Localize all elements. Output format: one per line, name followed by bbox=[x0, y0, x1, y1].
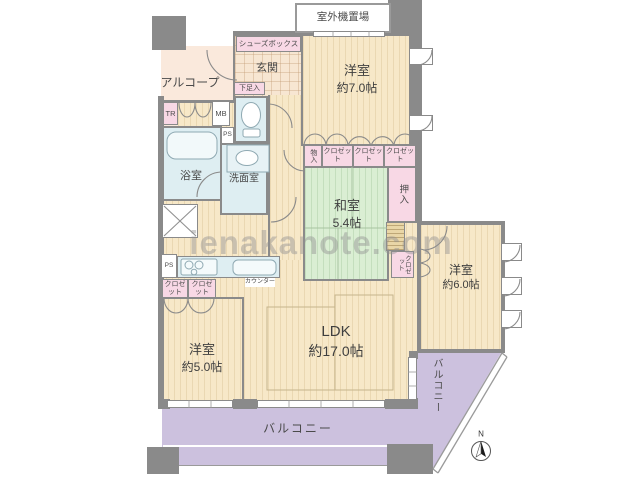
wall-left-outer bbox=[158, 96, 164, 406]
room-toilet bbox=[234, 96, 268, 143]
closet-top-2: クロゼット bbox=[353, 145, 384, 167]
closet-kitchen-2: クロゼット bbox=[188, 279, 216, 298]
pillar-bottom-right bbox=[387, 444, 433, 474]
label-bathroom: 浴室 bbox=[180, 167, 202, 183]
pipe-space-1: PS bbox=[221, 127, 234, 144]
shoe-cabinet-box: 下足入 bbox=[234, 82, 265, 95]
wall-bottom-right bbox=[385, 399, 411, 409]
pillar-top-left bbox=[152, 16, 186, 50]
window-west7-1 bbox=[409, 48, 433, 65]
watermark: ienakanote.com bbox=[166, 224, 476, 262]
wall-bottom-mid bbox=[233, 399, 257, 409]
compass-icon bbox=[472, 441, 491, 461]
closet-top-1: クロゼット bbox=[322, 145, 353, 167]
label-alcove: アルコープ bbox=[161, 74, 220, 91]
window-west7-2 bbox=[409, 115, 433, 131]
label-western5: 洋室 約5.0帖 bbox=[182, 341, 223, 375]
label-western7: 洋室 約7.0帖 bbox=[337, 62, 378, 96]
label-ldk: LDK 約17.0帖 bbox=[308, 322, 363, 361]
window-south-strip-1 bbox=[167, 400, 233, 408]
outdoor-unit-box: 室外機置場 bbox=[295, 3, 391, 33]
label-balcony-east: バルコニー bbox=[429, 358, 444, 413]
window-west6-3 bbox=[501, 310, 522, 328]
pillar-top-right bbox=[388, 0, 422, 33]
trunk-room-box: TR bbox=[163, 102, 178, 125]
closet-kitchen-1: クロゼット bbox=[162, 279, 188, 298]
oshiire-box: 押入 bbox=[387, 166, 417, 223]
closet-top-3: クロゼット bbox=[384, 145, 416, 167]
storage-small-box: 物入 bbox=[304, 145, 322, 167]
floor-plan: 室外機置場 物入 クロゼット クロゼット クロゼット 押入 クロゼット シューズ… bbox=[0, 0, 640, 480]
label-balcony-south: バルコニー bbox=[263, 420, 333, 437]
label-washroom: 洗面室 bbox=[229, 170, 259, 185]
label-western6: 洋室 約6.0帖 bbox=[442, 262, 479, 293]
shoes-box: シューズボックス bbox=[236, 36, 301, 52]
window-east-strip bbox=[408, 357, 417, 400]
label-compass-n: N bbox=[478, 430, 484, 439]
room-bathroom bbox=[160, 126, 222, 201]
pillar-bottom-left bbox=[147, 447, 179, 474]
label-entrance: 玄関 bbox=[256, 59, 278, 75]
window-south-strip-2 bbox=[257, 400, 385, 408]
meter-box: MB bbox=[212, 101, 230, 126]
window-top-strip bbox=[313, 31, 385, 37]
window-west6-2 bbox=[501, 277, 522, 295]
window-west6-1 bbox=[501, 243, 522, 261]
counter-tag: カウンター bbox=[245, 278, 275, 287]
